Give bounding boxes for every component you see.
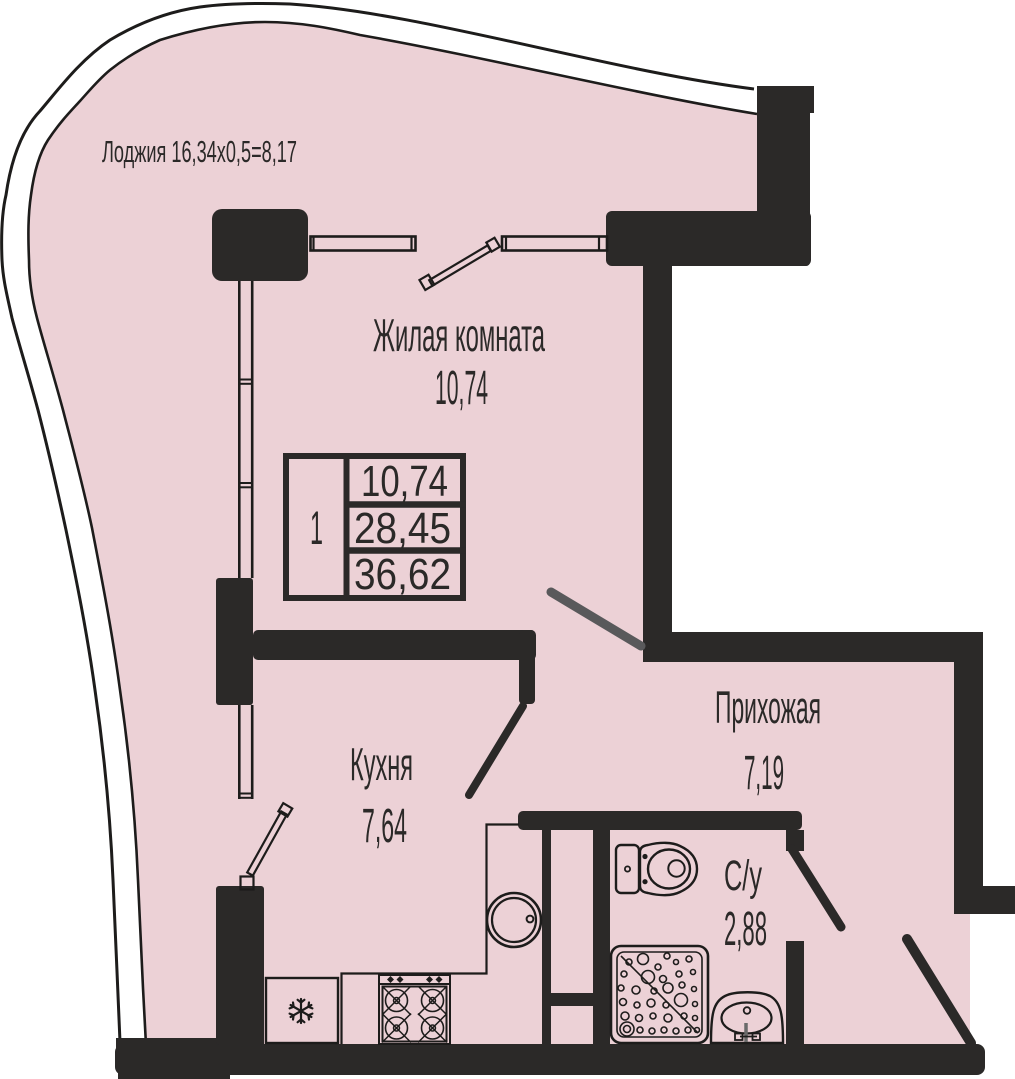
svg-text:1: 1 — [310, 501, 323, 554]
svg-text:Кухня: Кухня — [350, 738, 413, 790]
svg-text:Лоджия 16,34х0,5=8,17: Лоджия 16,34х0,5=8,17 — [102, 134, 297, 169]
svg-text:7,19: 7,19 — [744, 747, 784, 800]
svg-text:10,74: 10,74 — [361, 457, 448, 506]
svg-text:Жилая комната: Жилая комната — [373, 309, 545, 361]
svg-text:С/у: С/у — [724, 852, 762, 900]
svg-text:36,62: 36,62 — [354, 550, 451, 599]
svg-text:2,88: 2,88 — [724, 903, 767, 956]
svg-text:Прихожая: Прихожая — [715, 682, 821, 733]
svg-text:10,74: 10,74 — [435, 362, 488, 415]
svg-text:28,45: 28,45 — [354, 504, 451, 553]
svg-text:7,64: 7,64 — [362, 800, 407, 853]
